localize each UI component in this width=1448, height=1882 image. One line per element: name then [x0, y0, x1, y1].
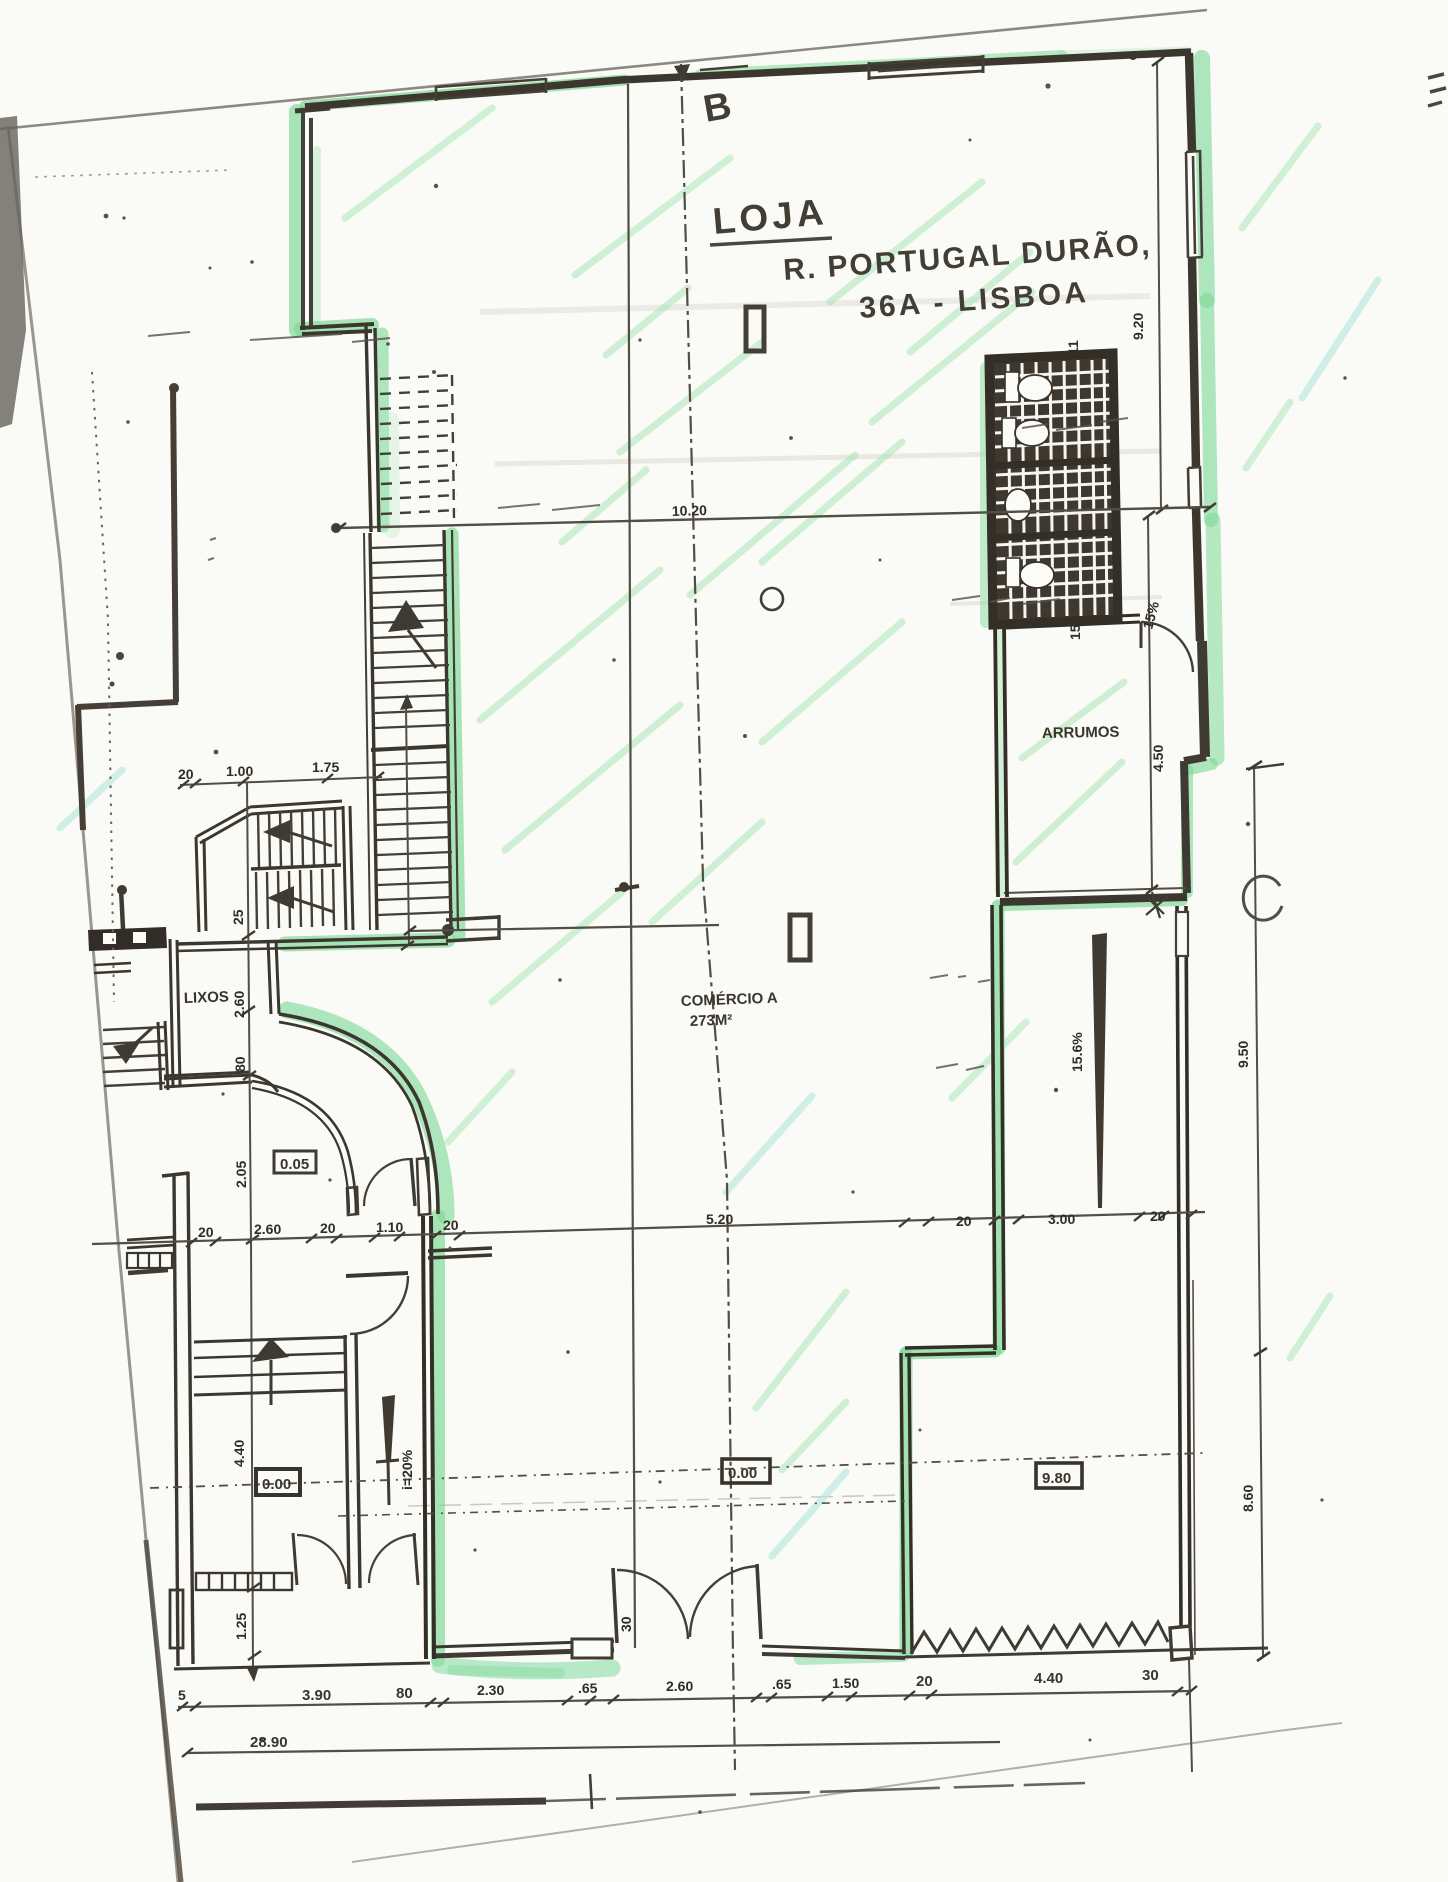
svg-text:ARRUMOS: ARRUMOS	[1042, 724, 1120, 742]
svg-text:3.90: 3.90	[302, 1687, 331, 1704]
svg-text:8.60: 8.60	[1240, 1485, 1256, 1512]
svg-text:2.60: 2.60	[666, 1678, 693, 1694]
svg-text:25: 25	[230, 909, 246, 925]
svg-text:5.20: 5.20	[706, 1211, 733, 1227]
svg-text:1.50: 1.50	[832, 1675, 859, 1691]
svg-text:20: 20	[916, 1673, 933, 1690]
svg-text:1.25: 1.25	[233, 1613, 249, 1640]
svg-text:9.20: 9.20	[1130, 313, 1146, 340]
svg-text:2.05: 2.05	[233, 1161, 249, 1188]
svg-text:1.10: 1.10	[376, 1219, 403, 1235]
svg-text:4.40: 4.40	[231, 1440, 247, 1467]
svg-text:2.60: 2.60	[231, 991, 247, 1018]
svg-text:9.80: 9.80	[1042, 1470, 1071, 1487]
svg-text:20: 20	[956, 1213, 972, 1229]
svg-text:9.50: 9.50	[1235, 1041, 1251, 1068]
svg-text:30: 30	[618, 1616, 634, 1632]
svg-text:20: 20	[178, 766, 194, 782]
svg-text:0.05: 0.05	[280, 1156, 309, 1173]
svg-text:80: 80	[232, 1056, 248, 1072]
svg-text:20: 20	[320, 1220, 336, 1236]
svg-text:1.75: 1.75	[312, 759, 339, 775]
svg-text:2.60: 2.60	[254, 1221, 281, 1237]
svg-text:.65: .65	[772, 1676, 792, 1692]
svg-text:4.50: 4.50	[1150, 745, 1166, 772]
svg-text:15.6%: 15.6%	[1069, 1032, 1085, 1072]
svg-text:20: 20	[198, 1224, 214, 1240]
svg-text:10.20: 10.20	[672, 502, 708, 519]
svg-text:30: 30	[1142, 1667, 1159, 1684]
svg-text:15: 15	[1067, 624, 1083, 640]
svg-text:i=20%: i=20%	[399, 1449, 415, 1490]
svg-text:3.00: 3.00	[1048, 1211, 1075, 1227]
svg-text:1.00: 1.00	[226, 763, 253, 779]
svg-text:4.40: 4.40	[1034, 1670, 1063, 1687]
svg-text:0.00: 0.00	[262, 1476, 291, 1493]
svg-text:273M²: 273M²	[690, 1012, 733, 1030]
svg-text:11: 11	[1065, 340, 1081, 355]
svg-text:20: 20	[1150, 1208, 1166, 1224]
svg-text:0.00: 0.00	[728, 1465, 757, 1482]
svg-text:LIXOS: LIXOS	[184, 988, 230, 1007]
svg-text:28.90: 28.90	[250, 1734, 288, 1751]
svg-text:5: 5	[178, 1687, 186, 1703]
svg-text:.65: .65	[578, 1680, 598, 1696]
svg-text:2.30: 2.30	[477, 1682, 504, 1698]
svg-text:COMÉRCIO A: COMÉRCIO A	[681, 990, 779, 1010]
svg-text:20: 20	[443, 1217, 459, 1233]
svg-text:80: 80	[396, 1685, 413, 1702]
